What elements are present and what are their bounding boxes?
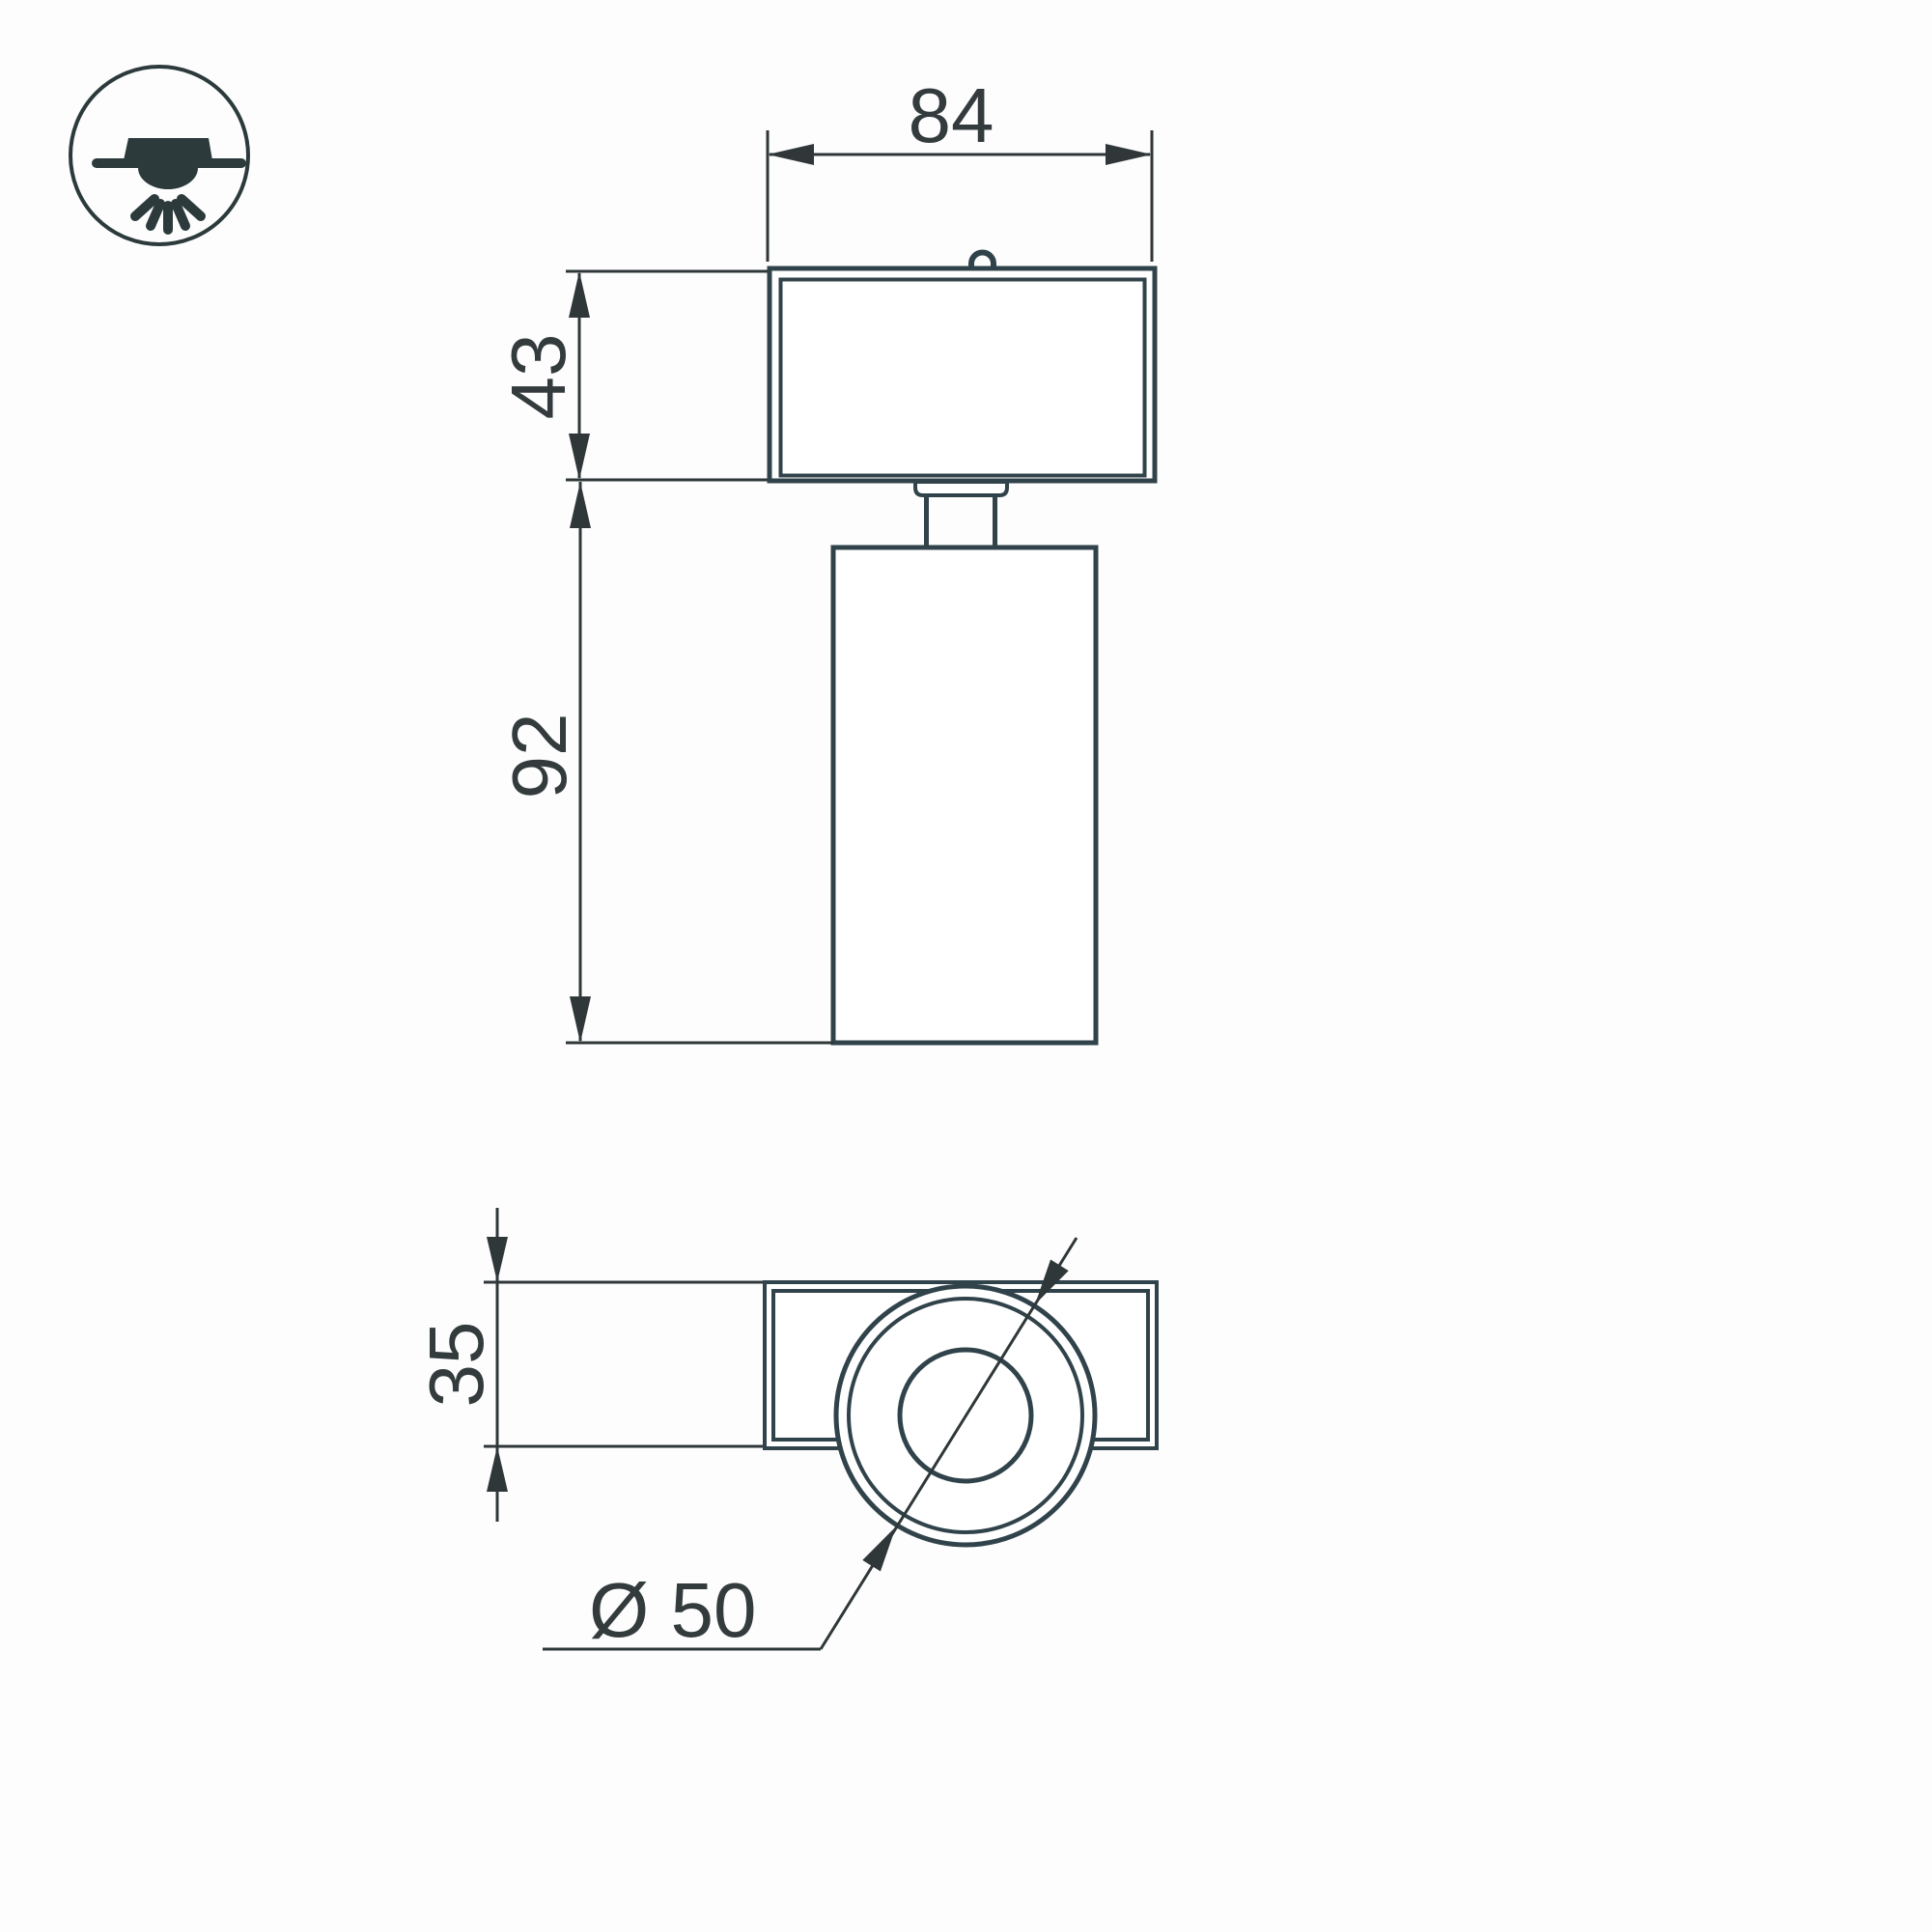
dimension-label-width: 84 [909,72,994,158]
dimension-width-84: 84 [768,72,1152,262]
dimension-drawing-canvas: 84 43 92 [0,0,1932,1932]
dimension-label-mount-height: 43 [495,334,581,420]
arrowhead-down [569,434,590,480]
mount-box-outer [770,268,1155,481]
icon-light-dome [138,168,198,189]
dimension-label-diameter: Ø 50 [589,1567,756,1653]
dimension-label-depth: 35 [413,1322,499,1408]
arrowhead-up [570,482,591,528]
dimension-label-body-height: 92 [496,714,582,799]
arrowhead-down [487,1237,508,1282]
surface-mount-luminaire-icon [70,67,248,244]
arrowhead-up [487,1446,508,1492]
dimension-mount-height-43: 43 [495,271,768,480]
icon-lamp-housing [124,138,212,160]
lamp-cylinder-body [833,547,1096,1043]
dimension-body-height-92: 92 [496,482,833,1043]
dimension-depth-35: 35 [413,1208,763,1522]
arrowhead-up [569,271,590,318]
front-view [770,253,1155,1044]
icon-light-rays [135,199,201,230]
technical-drawing-page: 84 43 92 [0,0,1932,1932]
top-view [765,1282,1157,1545]
arrowhead-right [1106,144,1152,165]
arrowhead-lower-left [862,1526,896,1572]
swivel-collar [915,482,1007,495]
arrowhead-left [768,144,814,165]
arrowhead-down [570,996,591,1043]
